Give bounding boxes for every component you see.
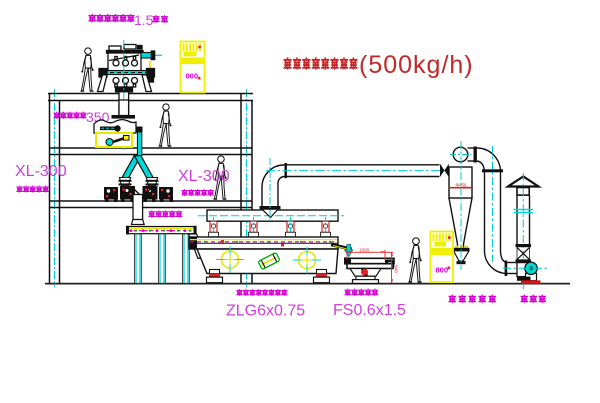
svg-text:FS0.6x1.5: FS0.6x1.5 bbox=[333, 302, 406, 319]
svg-text:1500: 1500 bbox=[359, 247, 370, 252]
svg-text:ZLG6x0.75: ZLG6x0.75 bbox=[226, 303, 305, 320]
svg-text:540: 540 bbox=[393, 265, 398, 273]
svg-text:800: 800 bbox=[186, 72, 199, 81]
svg-text:XL-300: XL-300 bbox=[15, 163, 67, 180]
svg-text:1.5: 1.5 bbox=[134, 12, 154, 28]
svg-text:(500kg/h): (500kg/h) bbox=[359, 51, 474, 79]
svg-text:XL-300: XL-300 bbox=[178, 168, 230, 185]
svg-text:800: 800 bbox=[436, 266, 449, 275]
